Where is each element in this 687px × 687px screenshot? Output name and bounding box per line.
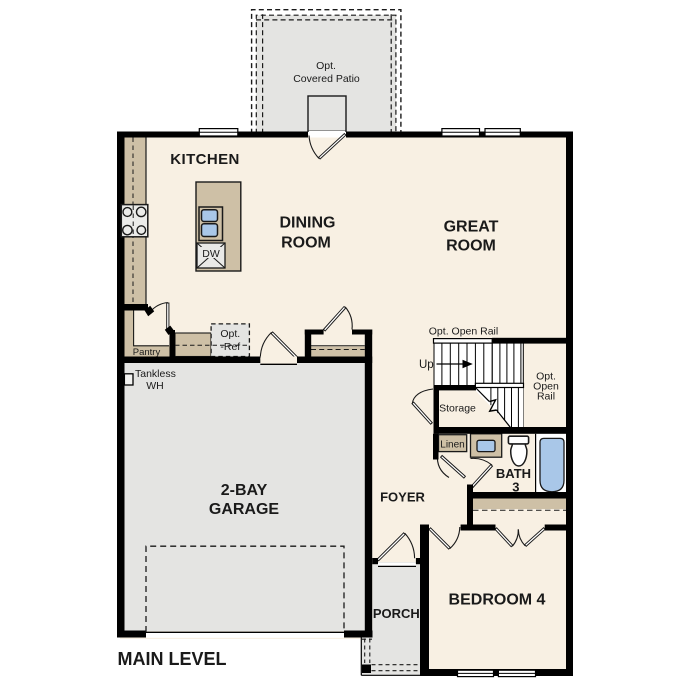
- svg-text:DINING: DINING: [280, 215, 336, 232]
- svg-text:FOYER: FOYER: [380, 490, 425, 505]
- svg-text:Up: Up: [419, 359, 434, 371]
- svg-text:ROOM: ROOM: [446, 238, 496, 255]
- svg-text:Opt.: Opt.: [316, 60, 336, 72]
- svg-text:Rail: Rail: [537, 391, 555, 403]
- svg-text:PORCH: PORCH: [373, 606, 420, 621]
- svg-text:DW: DW: [202, 248, 220, 260]
- svg-text:Covered Patio: Covered Patio: [293, 73, 360, 85]
- svg-text:KITCHEN: KITCHEN: [170, 151, 239, 168]
- svg-text:Tankless: Tankless: [135, 368, 176, 380]
- svg-text:3: 3: [512, 479, 519, 494]
- svg-text:Storage: Storage: [439, 403, 476, 415]
- svg-text:Linen: Linen: [440, 440, 464, 451]
- svg-text:BEDROOM 4: BEDROOM 4: [449, 592, 546, 609]
- svg-text:-Ref: -Ref: [220, 341, 240, 353]
- svg-text:WH: WH: [146, 380, 164, 392]
- svg-text:2-BAY: 2-BAY: [221, 482, 268, 499]
- svg-text:GREAT: GREAT: [444, 219, 499, 236]
- svg-text:Opt. Open Rail: Opt. Open Rail: [429, 326, 498, 338]
- svg-text:MAIN LEVEL: MAIN LEVEL: [118, 649, 227, 669]
- svg-text:Opt.: Opt.: [220, 328, 240, 340]
- svg-text:Pantry: Pantry: [133, 347, 161, 358]
- svg-text:ROOM: ROOM: [281, 234, 331, 251]
- svg-text:GARAGE: GARAGE: [209, 501, 280, 518]
